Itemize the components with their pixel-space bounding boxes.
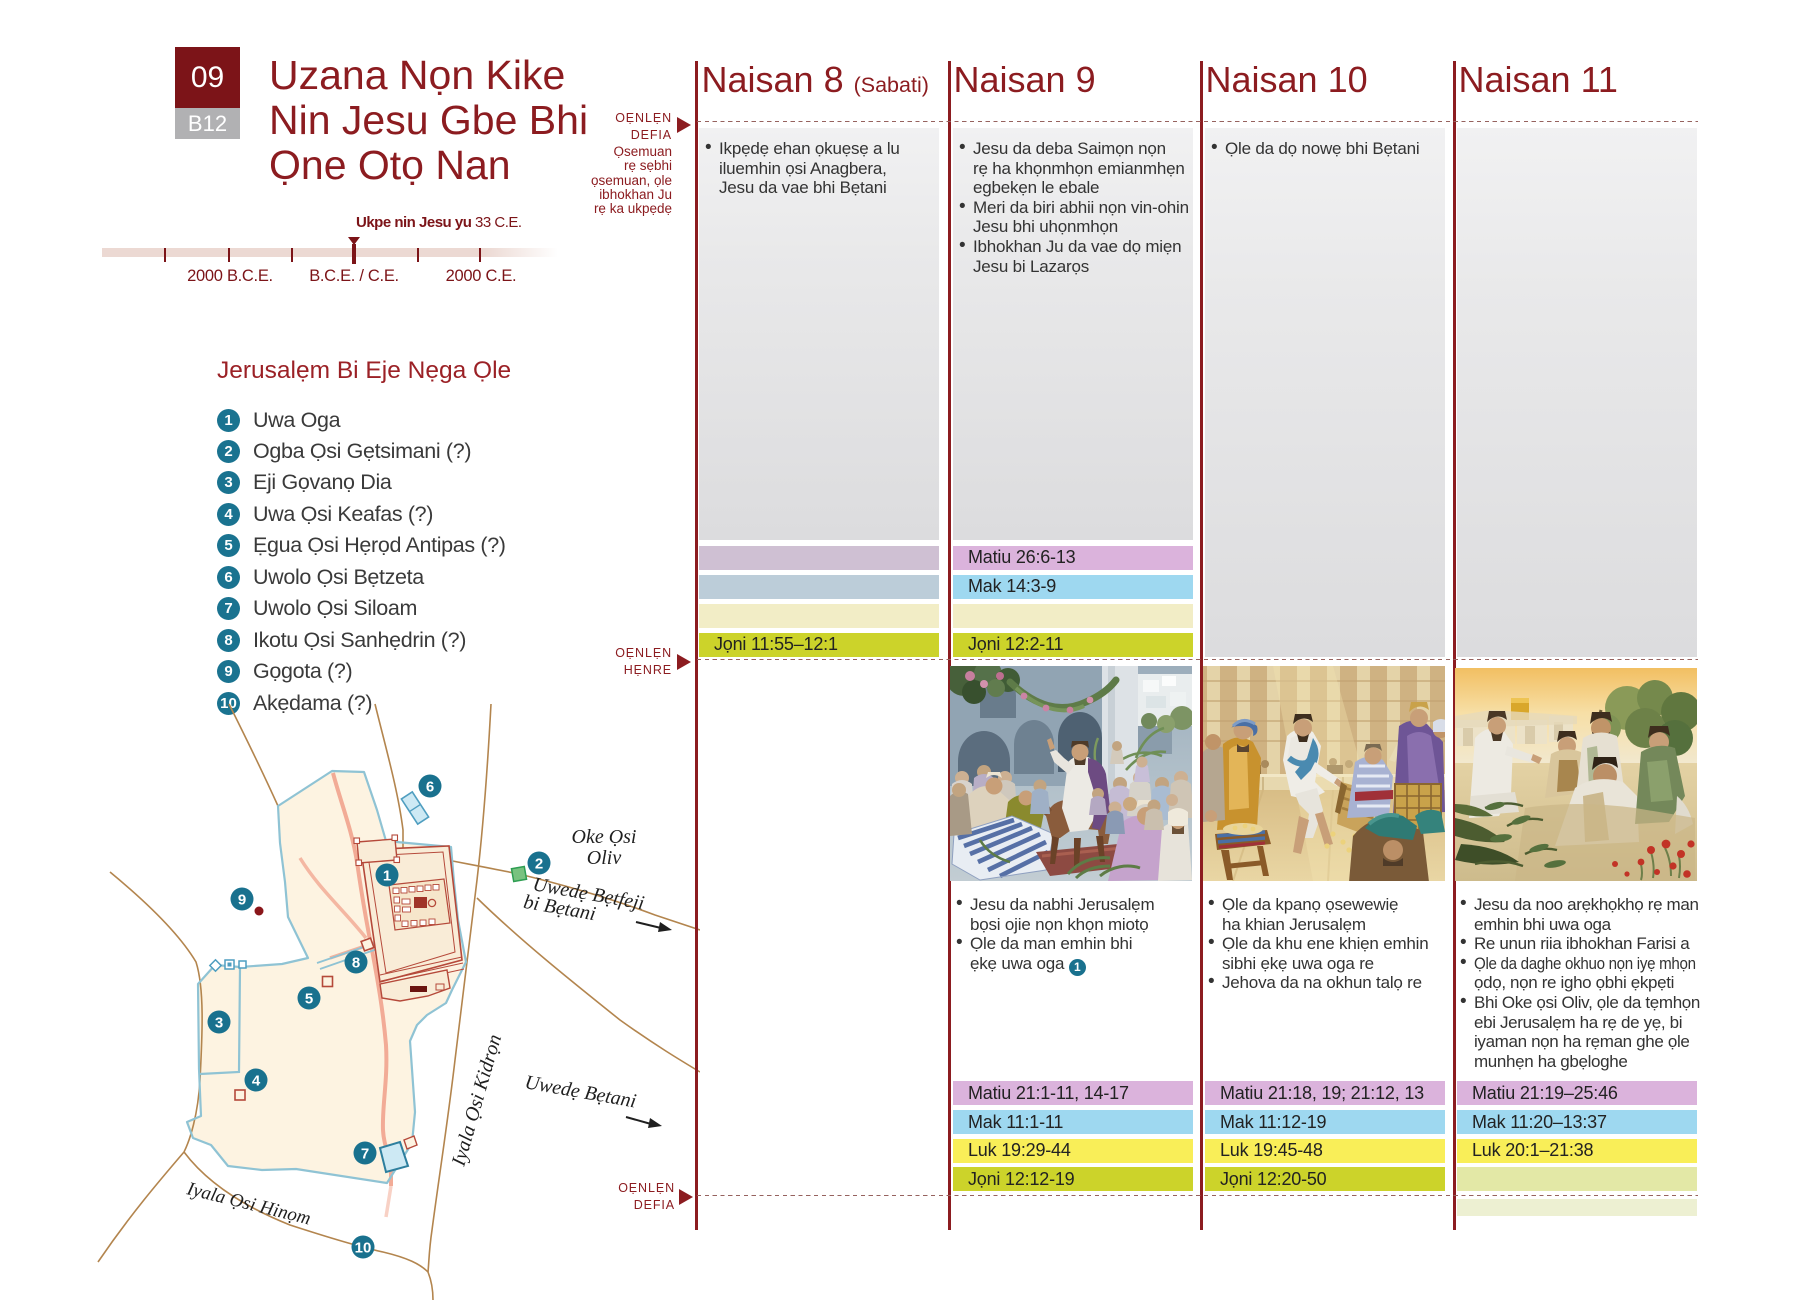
svg-text:7: 7 [361, 1146, 369, 1163]
svg-text:Oliv: Oliv [587, 847, 622, 869]
svg-text:3: 3 [215, 1015, 223, 1032]
svg-text:Oke Ọsi: Oke Ọsi [572, 826, 637, 848]
svg-text:8: 8 [352, 955, 360, 972]
svg-text:Iyala Ọsi Hinọm: Iyala Ọsi Hinọm [184, 1178, 313, 1229]
svg-text:10: 10 [355, 1240, 372, 1257]
svg-text:4: 4 [252, 1073, 261, 1090]
svg-text:9: 9 [238, 892, 246, 909]
svg-text:1: 1 [383, 868, 391, 885]
svg-text:2: 2 [535, 856, 543, 873]
svg-text:6: 6 [426, 779, 434, 796]
svg-text:5: 5 [305, 991, 313, 1008]
svg-text:Uwedẹ Bẹtani: Uwedẹ Bẹtani [523, 1071, 638, 1112]
